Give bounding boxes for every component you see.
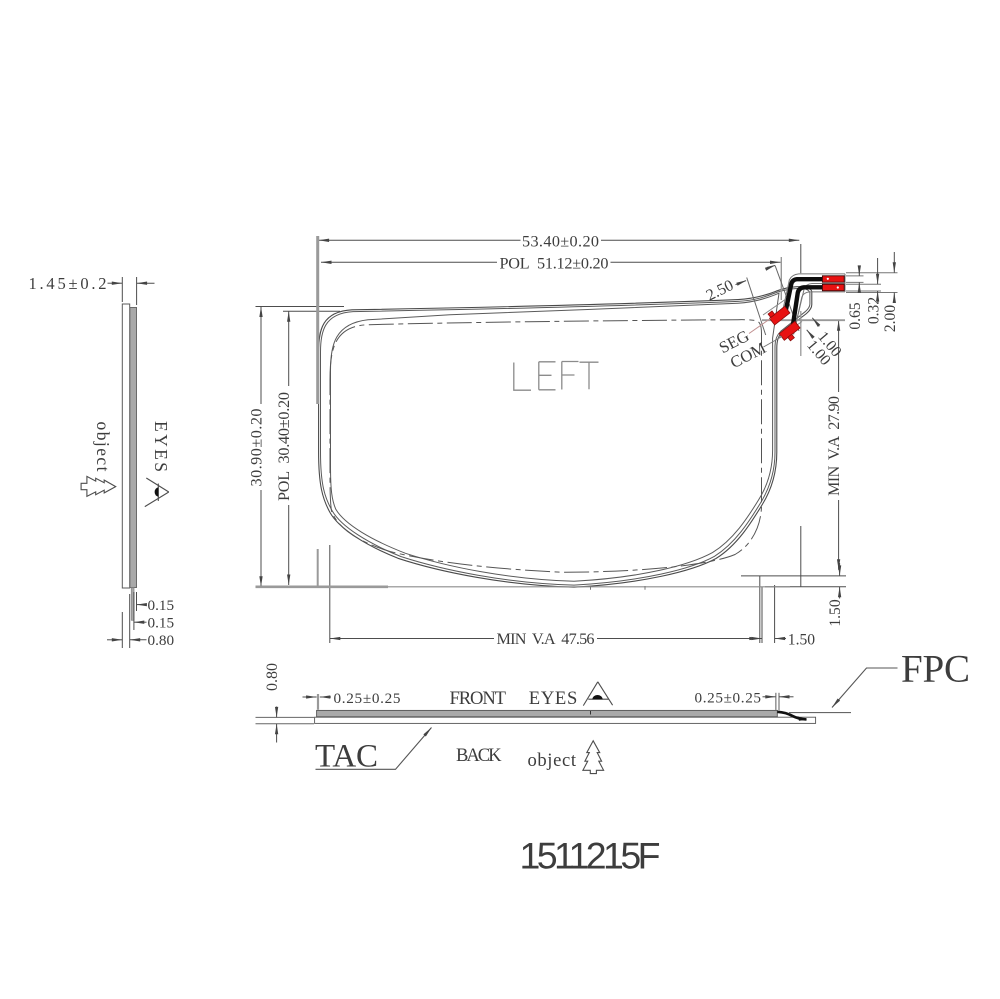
svg-text:object: object xyxy=(528,750,577,771)
svg-text:1511215F: 1511215F xyxy=(520,835,661,877)
svg-text:EYES: EYES xyxy=(151,421,171,472)
svg-text:0.25±0.25: 0.25±0.25 xyxy=(334,690,401,707)
svg-text:object: object xyxy=(93,422,113,472)
svg-text:0.32: 0.32 xyxy=(865,297,882,324)
svg-text:53.40±0.20: 53.40±0.20 xyxy=(522,233,599,251)
svg-text:0.80: 0.80 xyxy=(264,663,281,691)
svg-text:POL 30.40±0.20: POL 30.40±0.20 xyxy=(275,392,293,501)
svg-text:1.45±0.2: 1.45±0.2 xyxy=(29,274,107,293)
svg-text:EYES: EYES xyxy=(529,688,578,709)
svg-text:0.65: 0.65 xyxy=(847,302,864,329)
svg-text:FRONT: FRONT xyxy=(450,688,507,709)
svg-text:MIN V.A 47.56: MIN V.A 47.56 xyxy=(497,630,595,648)
svg-text:0.25±0.25: 0.25±0.25 xyxy=(695,690,762,707)
svg-text:BACK: BACK xyxy=(456,745,502,766)
svg-text:FPC: FPC xyxy=(901,648,970,691)
svg-text:0.15: 0.15 xyxy=(148,615,175,632)
svg-text:POL 51.12±0.20: POL 51.12±0.20 xyxy=(500,255,609,273)
svg-text:2.00: 2.00 xyxy=(882,305,899,332)
svg-text:MIN V.A 27.90: MIN V.A 27.90 xyxy=(825,396,843,496)
svg-text:0.80: 0.80 xyxy=(148,632,175,649)
svg-text:0.15: 0.15 xyxy=(148,597,175,614)
svg-text:1.50: 1.50 xyxy=(827,599,844,626)
svg-text:1.50: 1.50 xyxy=(788,631,815,648)
svg-text:30.90±0.20: 30.90±0.20 xyxy=(248,409,266,487)
